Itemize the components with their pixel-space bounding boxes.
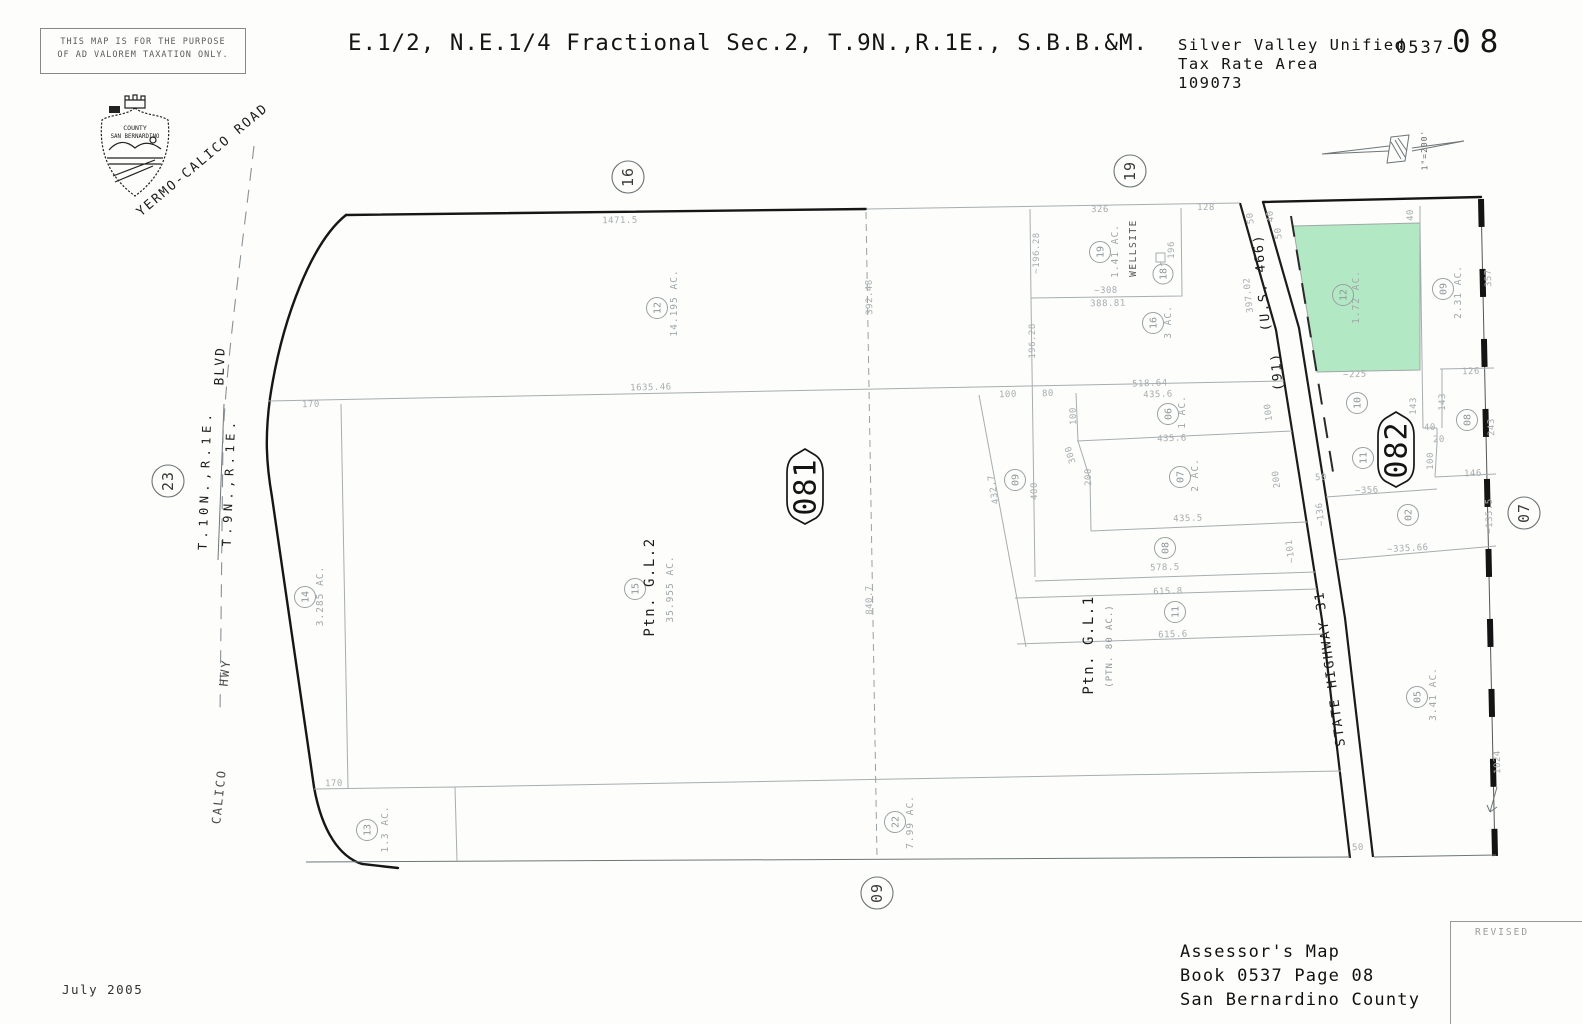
township-label-t10n: T.10N.,R.1E. [196, 409, 215, 550]
dim-label: 100 [1069, 407, 1080, 425]
svg-text:02: 02 [1404, 509, 1415, 521]
svg-text:16: 16 [619, 167, 637, 187]
dim-label: 40 [1424, 423, 1436, 433]
road-label-blvd: BLVD [212, 346, 228, 386]
parcel-map-canvas: COUNTY SAN BERNARDINO 1"=200' YERMO-CALI… [0, 0, 1582, 1024]
svg-text:18: 18 [1159, 268, 1170, 280]
svg-text:16: 16 [1149, 317, 1160, 329]
svg-text:08: 08 [1161, 542, 1172, 554]
parcel-acres: 2.31 AC. [1453, 265, 1464, 319]
dim-label: 143 [1409, 397, 1419, 415]
parcel-circle-02: 02 [1398, 505, 1419, 526]
parcel-circle-22: 22 [885, 812, 906, 833]
dim-label: 615.8 [1153, 586, 1183, 597]
parcel-circle-06: 06 [1158, 404, 1179, 425]
section-marker-23: 23 [152, 465, 184, 497]
parcel-acres: 14.195 AC. [669, 269, 680, 336]
dim-label: 840.7 [865, 585, 876, 615]
parcel-circle-09-east: 09 [1433, 279, 1454, 300]
dim-label: 128 [1197, 203, 1215, 213]
dim-label: 518.64 [1132, 378, 1168, 389]
road-label-us466: (U.S. 466) [1251, 233, 1275, 332]
svg-text:11: 11 [1359, 452, 1370, 464]
dim-label: 200 [1271, 470, 1283, 489]
parcel-acres: 7.99 AC. [905, 795, 916, 849]
seal-name-label: SAN BERNARDINO [111, 134, 160, 140]
svg-text:12: 12 [653, 302, 664, 314]
svg-text:22: 22 [891, 816, 902, 828]
parcel-circle-14: 14 [295, 587, 316, 608]
dim-label: 100 [999, 390, 1017, 401]
section-marker-07: 07 [1508, 497, 1540, 529]
dim-label: 200 [1084, 468, 1094, 486]
svg-text:15: 15 [631, 583, 642, 595]
dim-label: 50 [1352, 843, 1364, 853]
parcel-acres: 3.285 AC. [315, 566, 326, 626]
svg-text:06: 06 [1164, 408, 1175, 420]
dim-label: ~225 [1343, 370, 1367, 381]
dim-label: 243 [1487, 418, 1498, 436]
dim-label: 50 [1315, 473, 1327, 483]
county-seal: COUNTY SAN BERNARDINO [101, 95, 168, 196]
gl1-acres-note: (PTN. 80 AC.) [1105, 604, 1115, 687]
dim-label: ~101 [1285, 539, 1298, 564]
parcel-circle-19: 19 [1090, 242, 1111, 263]
parcel-circle-09-mid: 09 [1005, 470, 1026, 491]
dim-label: 578.5 [1150, 562, 1180, 573]
dim-label: 170 [325, 779, 343, 790]
dim-label: 196.28 [1028, 323, 1038, 359]
dim-label: 1471.5 [602, 216, 638, 227]
svg-text:09: 09 [868, 883, 886, 903]
svg-text:081: 081 [789, 458, 824, 515]
svg-text:09: 09 [1439, 283, 1450, 295]
parcel-circle-12: 12 [647, 298, 668, 319]
parcel-circle-08: 08 [1155, 538, 1176, 559]
svg-text:23: 23 [159, 471, 177, 491]
parcel-circle-11-gl1: 11 [1165, 602, 1186, 623]
svg-text:19: 19 [1096, 246, 1107, 258]
dim-label: 170 [302, 400, 320, 411]
dim-label: 143 [1438, 393, 1448, 411]
seal-county-label: COUNTY [123, 124, 147, 132]
parcel-acres: 1.72 AC. [1351, 270, 1362, 324]
parcel-circle-10: 10 [1347, 393, 1368, 414]
dim-label: 126 [1462, 367, 1480, 378]
parcel-circle-08-east: 08 [1457, 410, 1478, 431]
wellsite-symbol [1156, 253, 1165, 262]
section-marker-19: 19 [1114, 155, 1146, 187]
parcel-acres: 3.41 AC. [1428, 667, 1439, 721]
gl2-label: Ptn. G.L.2 [642, 537, 658, 636]
svg-text:07: 07 [1176, 471, 1187, 483]
dim-label: 80 [1042, 389, 1054, 399]
road-label-hwy: HWY [217, 658, 234, 687]
parcel-acres: 1 AC. [1177, 395, 1188, 429]
dim-label: 50 [1273, 227, 1284, 240]
parcel-acres: 3 AC. [1163, 305, 1174, 339]
svg-text:08: 08 [1463, 414, 1474, 426]
parcel-circle-13: 13 [357, 820, 378, 841]
dim-label: 392.48 [865, 279, 876, 315]
road-label-91: (91) [1268, 351, 1286, 391]
dim-label: 146 [1464, 469, 1482, 480]
dim-label: 196 [1167, 241, 1177, 259]
dim-label: ~196.28 [1032, 232, 1042, 273]
dim-label: 400 [1030, 482, 1040, 500]
dim-label: 432.7 [987, 474, 1002, 505]
dim-label: 435.6 [1157, 433, 1187, 444]
seal-flag-icon [109, 106, 120, 113]
dim-label: ~135.5 [1485, 498, 1496, 534]
scale-label: 1"=200' [1420, 130, 1430, 171]
wellsite-label: WELLSITE [1128, 219, 1139, 277]
svg-text:10: 10 [1353, 397, 1364, 409]
section-marker-09: 09 [861, 877, 893, 909]
dim-label: 435.5 [1173, 513, 1203, 524]
parcel-acres: 35.955 AC. [665, 555, 676, 622]
dim-label: 40 [1406, 209, 1416, 221]
dim-label: 435.6 [1143, 389, 1173, 400]
dim-label: 20 [1433, 435, 1445, 445]
dim-label: 397.02 [1242, 277, 1256, 313]
map-badge-082: 082 [1378, 412, 1415, 487]
dim-label: 1024 [1493, 750, 1503, 774]
svg-text:07: 07 [1515, 503, 1533, 523]
svg-text:19: 19 [1121, 161, 1139, 181]
gl1-label: Ptn. G.L.1 [1081, 595, 1097, 694]
dim-label: 300 [1064, 445, 1079, 465]
dim-label: 50 [1245, 212, 1256, 225]
dim-label: ~335.66 [1387, 543, 1429, 555]
parcel-circle-18: 18 [1153, 264, 1173, 284]
dim-label: 388.81 [1090, 299, 1126, 310]
svg-text:13: 13 [363, 824, 374, 836]
road-label-calico: CALICO [209, 768, 229, 825]
parcel-circle-05: 05 [1407, 687, 1428, 708]
parcel-circle-11-east: 11 [1353, 448, 1374, 469]
parcel-acres: 1.3 AC. [380, 805, 391, 852]
parcel-acres: 1.41 AC. [1110, 224, 1121, 278]
parcel-circle-07: 07 [1170, 467, 1191, 488]
dim-label: 100 [1426, 452, 1436, 470]
assessor-map-page: THIS MAP IS FOR THE PURPOSE OF AD VALORE… [0, 0, 1582, 1024]
dim-label: ~136 [1315, 502, 1327, 527]
dim-label: 615.6 [1158, 629, 1188, 640]
svg-text:09: 09 [1011, 474, 1022, 486]
svg-text:12: 12 [1339, 289, 1350, 301]
dim-label: 357 [1484, 269, 1495, 287]
dim-label: ~356 [1355, 485, 1379, 496]
dim-label: ~308 [1094, 286, 1118, 296]
dim-label: 1635.46 [630, 382, 672, 393]
svg-text:14: 14 [301, 591, 312, 603]
dim-label: 326 [1091, 205, 1109, 215]
dim-label: 40 [1265, 210, 1276, 223]
parcel-circle-16: 16 [1143, 313, 1164, 334]
dim-label: 100 [1263, 403, 1275, 422]
north-arrow-icon [1322, 135, 1464, 163]
svg-text:05: 05 [1413, 691, 1424, 703]
parcel-acres: 2 AC. [1190, 458, 1201, 492]
map-badge-081: 081 [787, 449, 824, 524]
section-marker-16: 16 [612, 161, 644, 193]
svg-text:082: 082 [1380, 421, 1415, 478]
svg-text:11: 11 [1171, 606, 1182, 618]
